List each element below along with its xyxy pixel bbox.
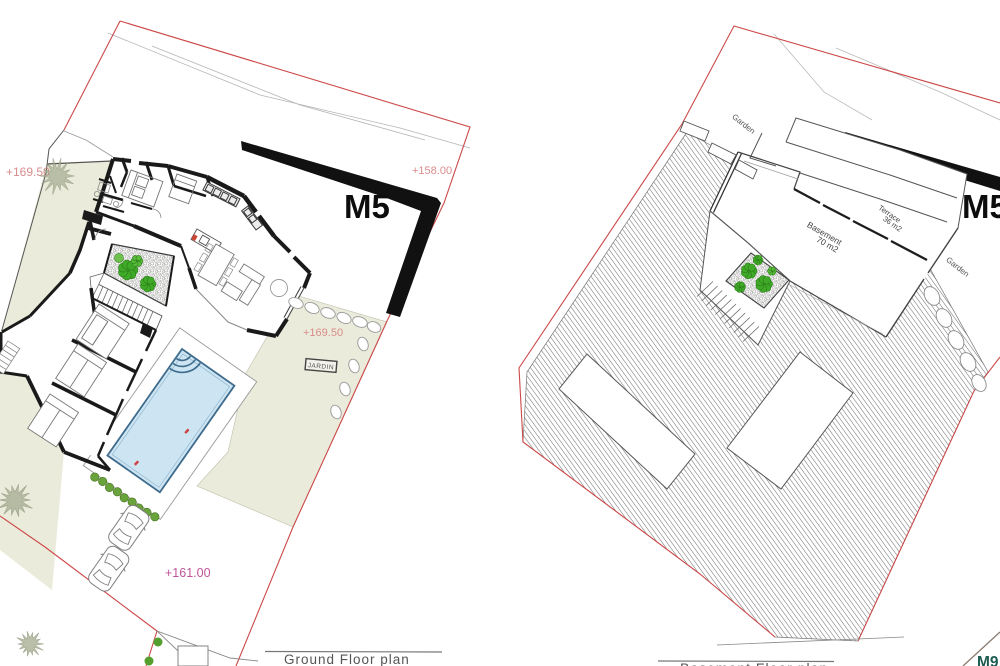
svg-text:+158.00: +158.00 [412, 165, 452, 177]
svg-text:+161.00: +161.00 [165, 566, 211, 580]
svg-text:Ground Floor plan: Ground Floor plan [284, 652, 410, 666]
svg-text:Basement Floor plan: Basement Floor plan [680, 660, 828, 666]
svg-text:M5: M5 [962, 188, 1000, 225]
svg-text:M5: M5 [344, 188, 390, 225]
svg-text:+169.50: +169.50 [6, 165, 50, 179]
svg-text:M9: M9 [977, 654, 999, 666]
svg-text:+169.50: +169.50 [303, 327, 343, 339]
